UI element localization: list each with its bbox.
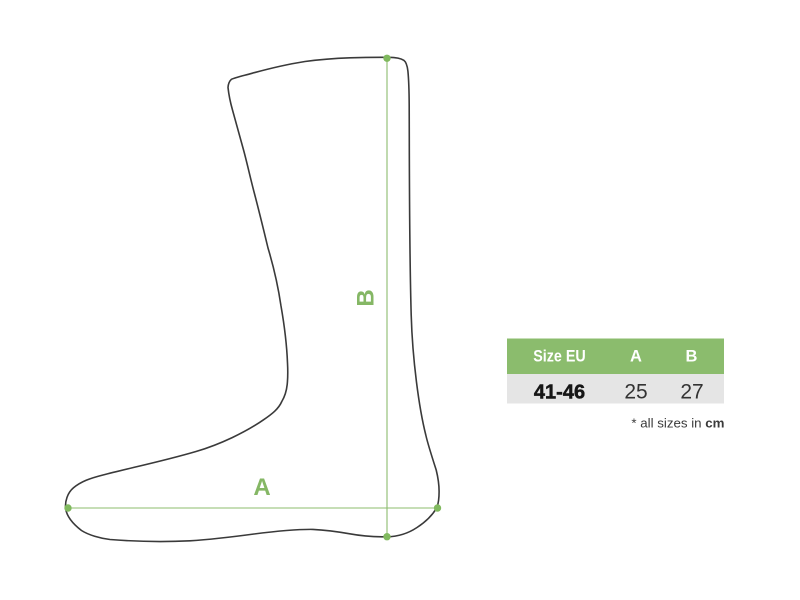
svg-text:27: 27 bbox=[680, 381, 703, 404]
svg-text:Size EU: Size EU bbox=[533, 348, 586, 366]
svg-text:41-46: 41-46 bbox=[534, 382, 585, 404]
svg-text:A: A bbox=[630, 348, 642, 366]
svg-text:* all sizes in cm: * all sizes in cm bbox=[631, 416, 724, 431]
svg-text:A: A bbox=[253, 474, 270, 501]
svg-text:B: B bbox=[686, 348, 698, 366]
svg-text:B: B bbox=[353, 289, 380, 306]
svg-text:25: 25 bbox=[624, 381, 647, 404]
